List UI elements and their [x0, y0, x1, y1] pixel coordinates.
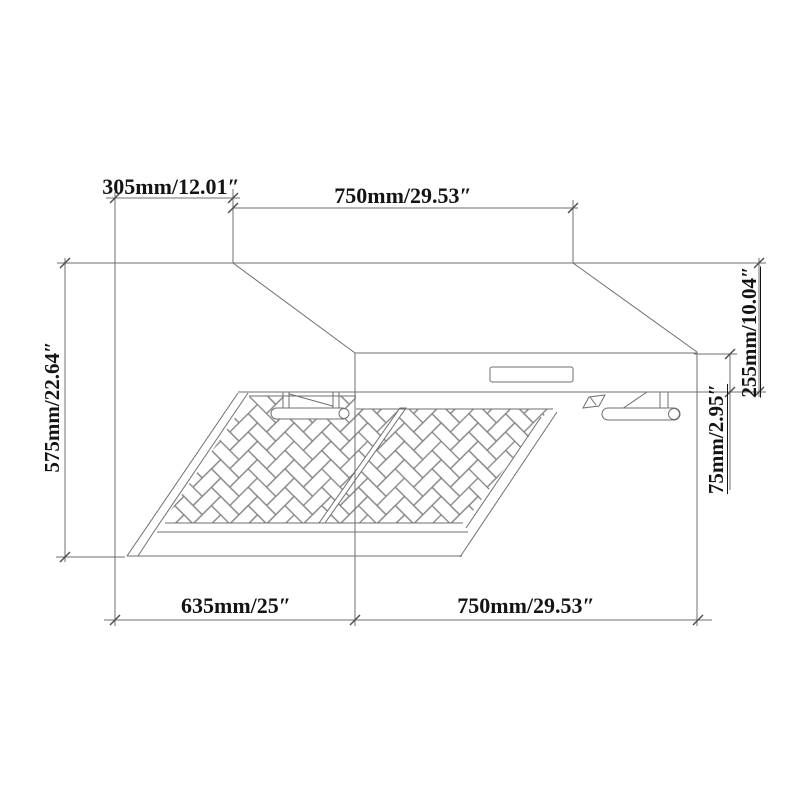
dim-label-left-height: 575mm/22.64″ — [40, 332, 64, 482]
switch-wedge-icon — [583, 395, 605, 408]
dim-label-bottom-depth: 635mm/25″ — [166, 594, 306, 618]
range-hood-drawing — [0, 0, 800, 800]
dim-label-right-lip-height: 75mm/2.95″ — [704, 369, 728, 509]
dim-label-bottom-width: 750mm/29.53″ — [446, 594, 606, 618]
technical-drawing-page: 305mm/12.01″ 750mm/29.53″ 575mm/22.64″ 2… — [0, 0, 800, 800]
right-handle-rail — [602, 392, 680, 420]
dim-label-top-width: 750mm/29.53″ — [323, 184, 483, 208]
left-rail-cap — [339, 409, 349, 419]
left-rail-bar — [271, 408, 348, 419]
dim-label-top-offset: 305mm/12.01″ — [91, 175, 251, 199]
control-panel — [490, 367, 573, 382]
dim-label-right-height: 255mm/10.04″ — [737, 257, 761, 407]
